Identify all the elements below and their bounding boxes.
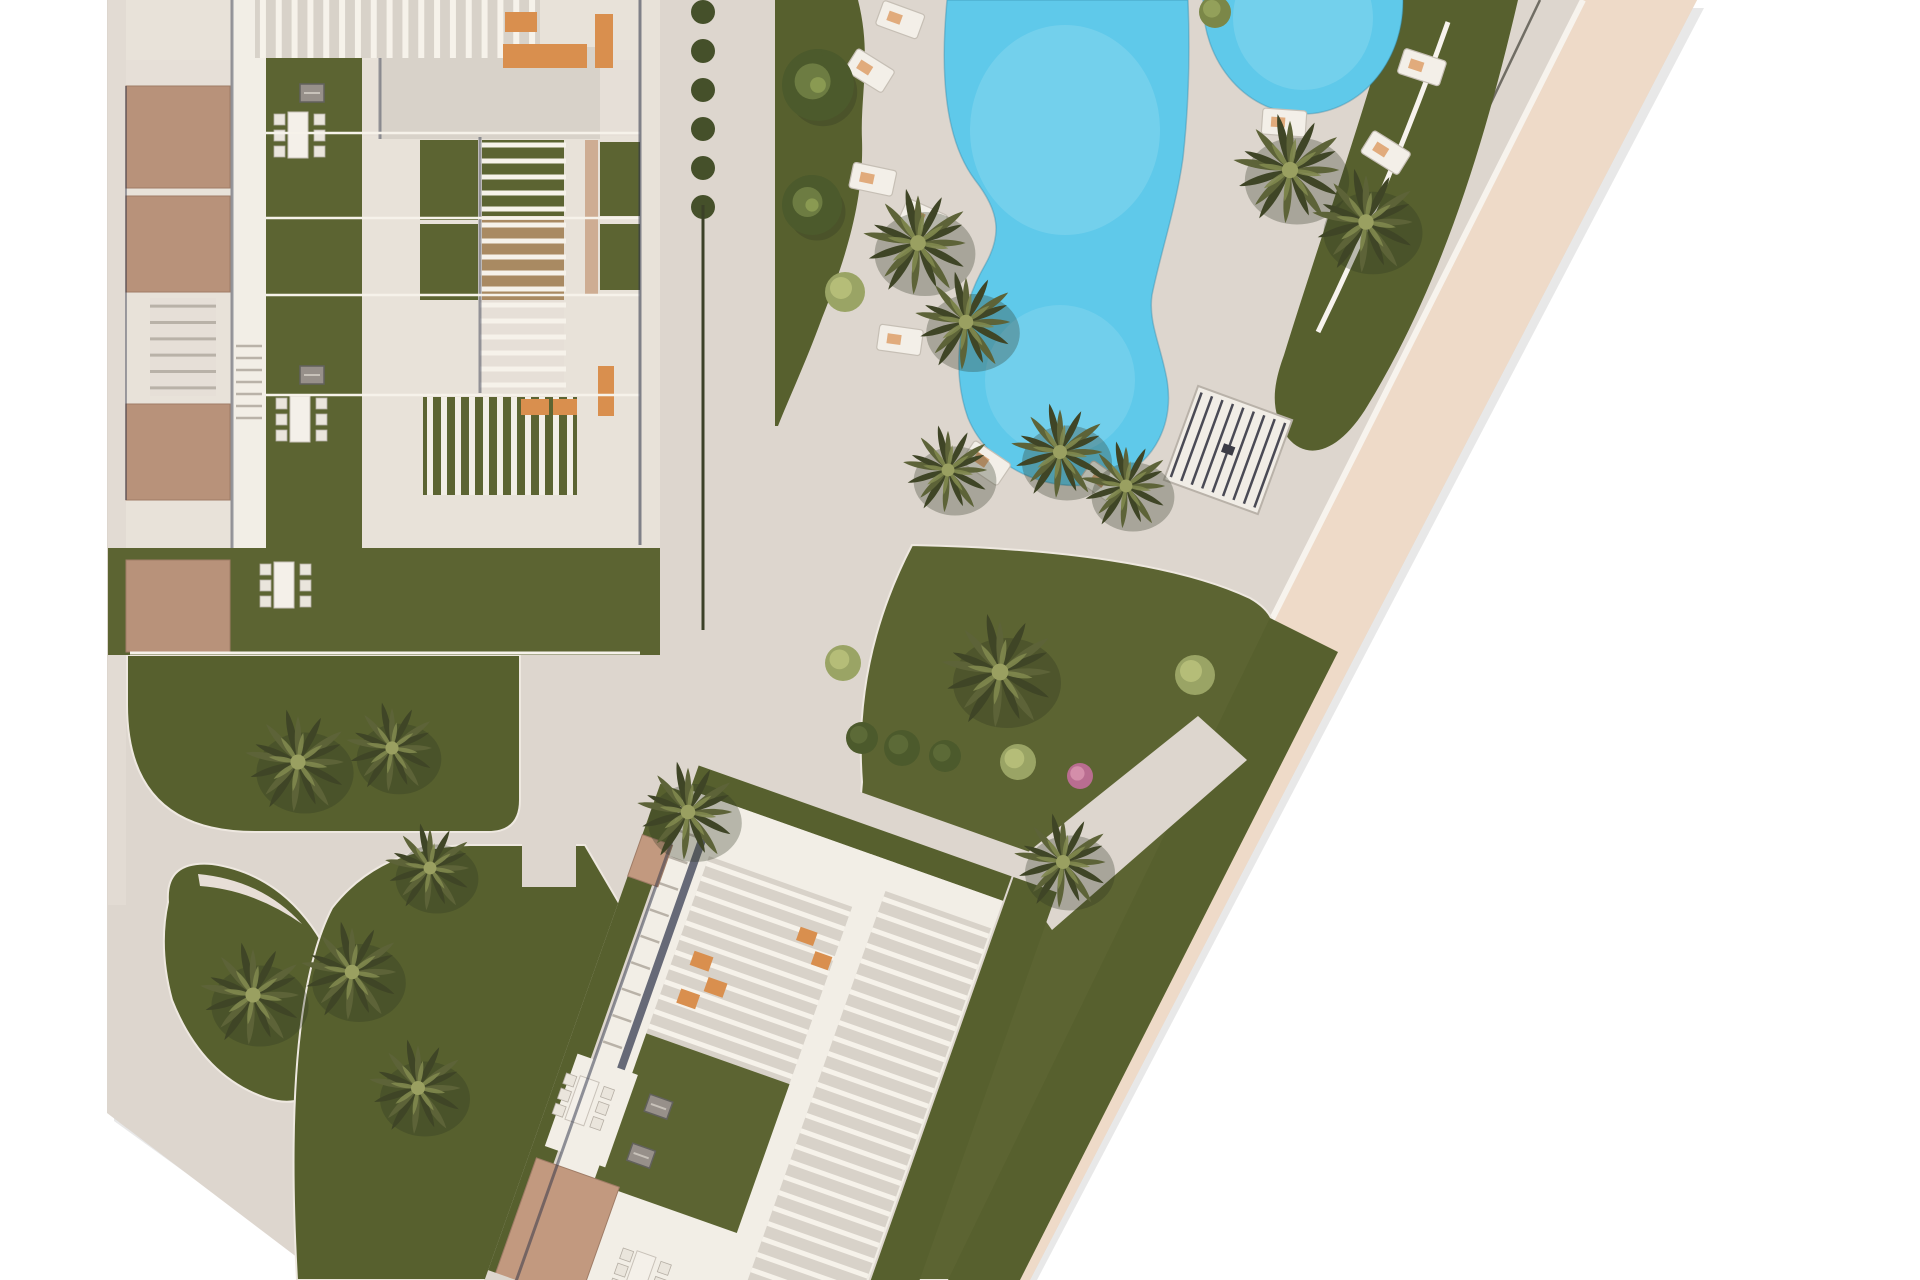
pergola-under-pave [482, 300, 564, 390]
table-top [274, 562, 294, 608]
chair [300, 580, 311, 591]
terrace-paving [126, 560, 230, 652]
orange-canopy [595, 14, 613, 68]
chair [316, 430, 327, 441]
palm-core [245, 987, 260, 1002]
site-plan-canvas [0, 0, 1920, 1280]
chair [274, 146, 285, 157]
orange-canopy [505, 12, 537, 32]
dot [691, 0, 715, 24]
palm-core [992, 664, 1009, 681]
garden-table [274, 112, 325, 158]
bush-highlight [1203, 0, 1221, 18]
terrace-paving [126, 86, 230, 188]
dot [691, 39, 715, 63]
garden-table [260, 562, 311, 608]
round-bush [1000, 744, 1036, 780]
tree-core [810, 77, 826, 93]
courtyard-garden [266, 0, 362, 548]
palm-core [1053, 445, 1067, 459]
shrub [884, 730, 920, 766]
chair [276, 398, 287, 409]
dot [691, 156, 715, 180]
tree-core [805, 198, 818, 211]
palm-core [1056, 855, 1070, 869]
pergola-louvers-top [255, 0, 540, 58]
round-bush [825, 272, 865, 312]
palm-core [1282, 162, 1298, 178]
lounger-towel [886, 333, 901, 345]
bush-highlight [1005, 749, 1025, 769]
chair [300, 564, 311, 575]
chair [316, 398, 327, 409]
palm-core [345, 965, 360, 980]
shrub [846, 722, 878, 754]
chair [260, 596, 271, 607]
chair [300, 596, 311, 607]
unit-garden [420, 140, 478, 220]
main-pool-sparkle [970, 25, 1160, 235]
chair [260, 580, 271, 591]
bush-highlight [889, 735, 909, 755]
bbq-grill [300, 84, 324, 102]
building-a-spine [232, 0, 266, 548]
garden-table [276, 396, 327, 442]
bush-highlight [850, 726, 868, 744]
orange-canopy [521, 399, 549, 415]
terrace-paving [126, 404, 230, 500]
palm-core [385, 741, 398, 754]
palm-core [959, 315, 974, 330]
chair [276, 430, 287, 441]
stripe-bed [255, 0, 540, 58]
flower-bush [1067, 763, 1093, 789]
chair [274, 130, 285, 141]
orange-canopy [553, 399, 577, 415]
palm-core [411, 1081, 425, 1095]
palm-core [910, 235, 926, 251]
shrub [929, 740, 961, 772]
orange-canopy [503, 44, 587, 68]
dot [691, 78, 715, 102]
round-bush [825, 645, 861, 681]
sun-lounger [876, 324, 923, 356]
round-bush [1175, 655, 1215, 695]
table-top [288, 112, 308, 158]
bbq-grill [300, 366, 324, 384]
bush-highlight [830, 650, 850, 670]
chair [274, 114, 285, 125]
chair [314, 114, 325, 125]
unit-garden [600, 142, 640, 216]
palm-core [681, 805, 696, 820]
table-top [290, 396, 310, 442]
chair [276, 414, 287, 425]
chair [314, 130, 325, 141]
spine-stair [236, 340, 262, 424]
orange-canopy [598, 366, 614, 416]
unit-garden [600, 224, 640, 290]
palm-core [424, 862, 437, 875]
bush-highlight [830, 277, 852, 299]
unit-garden [420, 224, 478, 300]
bush-highlight [1070, 766, 1084, 780]
chair [316, 414, 327, 425]
site-plan-rendering [0, 0, 1920, 1280]
bush-highlight [1180, 660, 1202, 682]
terrace-paving [126, 196, 230, 292]
chair [314, 146, 325, 157]
bush-highlight [933, 744, 951, 762]
dot [691, 117, 715, 141]
palm-core [942, 464, 955, 477]
exterior-stair [150, 298, 216, 396]
stripe-bed [150, 298, 216, 396]
palm-core [1358, 214, 1373, 229]
building-a-left-wall [108, 0, 126, 905]
chair [260, 564, 271, 575]
palm-core [290, 754, 305, 769]
palm-core [1120, 480, 1133, 493]
